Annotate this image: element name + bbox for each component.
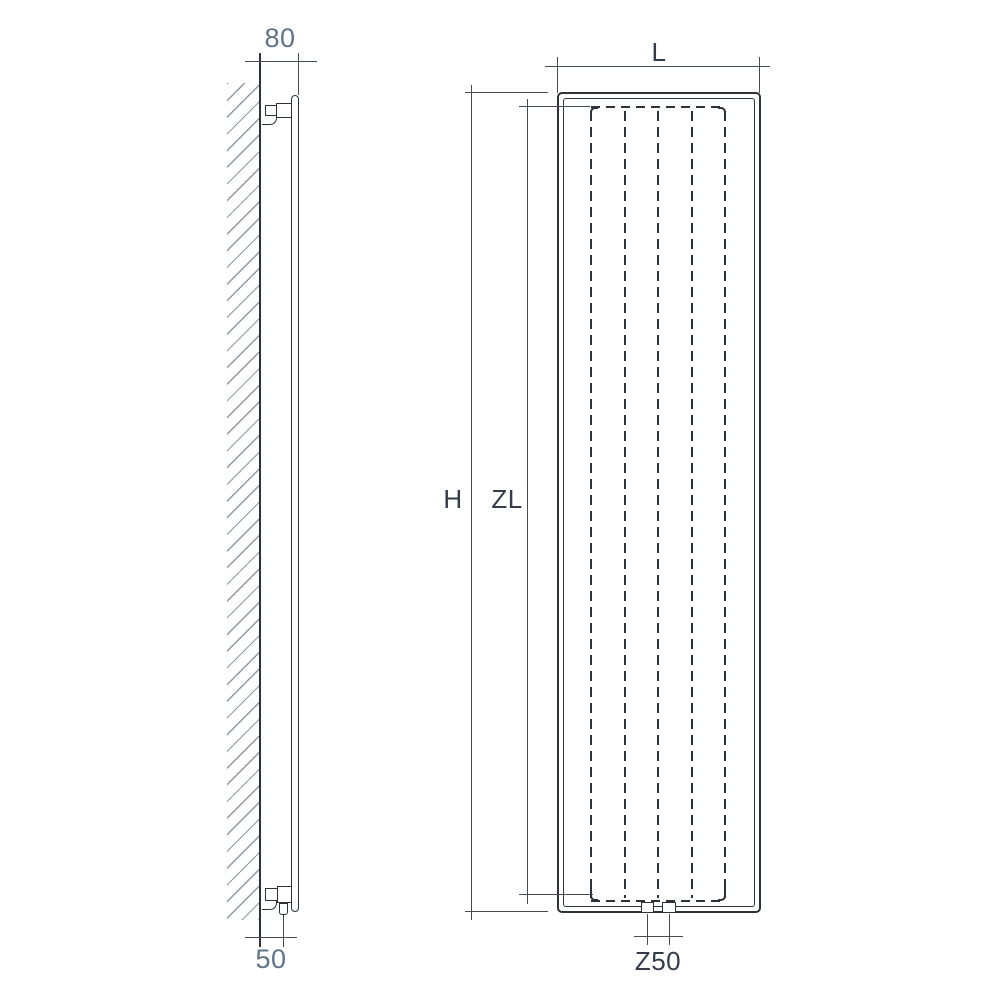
tube-dashed-line-5 (724, 111, 726, 898)
manifold-corner-bottom-right (718, 889, 726, 901)
extension-line-ZL-bottom (519, 894, 593, 895)
dimension-line-ZL (527, 99, 528, 904)
tube-dashed-line-3 (657, 111, 659, 898)
dimension-label-80: 80 (249, 25, 311, 52)
manifold-corner-top-left (590, 107, 598, 119)
tube-dashed-line-1 (590, 111, 592, 898)
manifold-corner-top-right (718, 107, 726, 119)
pipe-stub-side (279, 903, 288, 915)
manifold-top-dashed-line (591, 106, 725, 108)
extension-line-L-right (759, 57, 760, 93)
dimension-line-H (471, 85, 472, 920)
bracket-top-plate (265, 105, 277, 116)
dimension-label-L: L (634, 39, 684, 65)
extension-line-Z50-right (669, 914, 670, 945)
extension-line-H-bottom (465, 911, 548, 912)
bracket-bottom-arm (277, 886, 292, 903)
dimension-label-ZL: ZL (489, 486, 525, 512)
dimension-line-Z50 (634, 936, 683, 937)
tube-dashed-line-2 (624, 111, 626, 898)
extension-line-80-right (298, 53, 299, 95)
wall-surface-line (259, 53, 261, 947)
extension-line-H-top (465, 92, 548, 93)
dimension-label-H: H (438, 486, 468, 512)
bracket-top-hook (262, 116, 277, 125)
extension-line-L-left (557, 57, 558, 93)
tube-dashed-line-4 (691, 111, 693, 898)
bracket-bottom-plate (265, 888, 278, 901)
radiator-panel-side (291, 95, 299, 912)
wall-hatching (227, 83, 260, 920)
connection-stub-left (641, 902, 654, 913)
dimension-label-50: 50 (246, 946, 296, 973)
extension-line-ZL-top (519, 106, 590, 107)
extension-line-Z50-left (647, 914, 648, 945)
bracket-bottom-hook (262, 901, 277, 910)
dimension-line-80 (245, 61, 317, 62)
radiator-dimension-drawing: 80 50 L H (0, 0, 1000, 1000)
bracket-top-arm (276, 103, 292, 118)
dimension-line-50 (245, 937, 297, 938)
manifold-bottom-dashed-line (591, 900, 725, 902)
extension-line-50-pipe (283, 915, 284, 947)
dimension-label-Z50: Z50 (627, 948, 689, 974)
connection-stub-right (662, 902, 676, 913)
